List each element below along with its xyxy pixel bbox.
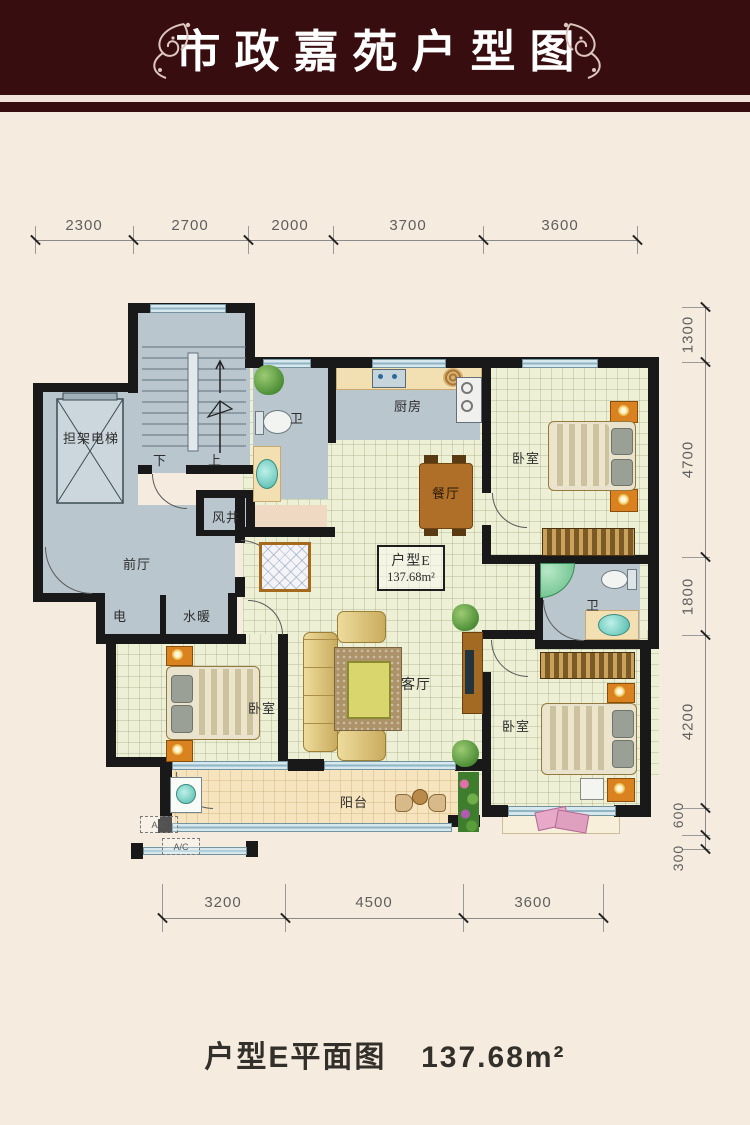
coffee-table xyxy=(347,661,391,719)
room-label-bath-top: 卫 xyxy=(288,408,306,427)
balcony-chair xyxy=(428,794,446,812)
caption-area: 137.68m² xyxy=(421,1041,565,1074)
room-label-electric: 电 xyxy=(108,606,132,625)
room-label-bedroom-se: 卧室 xyxy=(496,716,536,735)
dim-top-4: 3700 xyxy=(368,217,448,234)
ac-unit-2: A/C xyxy=(162,838,200,855)
balcony-rail-window xyxy=(172,823,452,832)
dim-ext xyxy=(463,884,464,932)
room-label-plumbing: 水暖 xyxy=(172,606,222,625)
wall-post xyxy=(131,843,143,859)
wall-segment xyxy=(535,640,651,649)
elevator-shaft-icon xyxy=(43,391,138,513)
bedroom-ne-window xyxy=(522,359,598,368)
stair-up-label: 上 xyxy=(205,450,225,469)
unit-area: 137.68m² xyxy=(379,570,443,585)
dim-right-4: 4200 xyxy=(680,687,697,757)
stair-down-label: 下 xyxy=(150,450,170,469)
plant-icon xyxy=(452,604,479,631)
balcony-table xyxy=(412,789,428,805)
dim-top-5: 3600 xyxy=(520,217,600,234)
page-title: 市政嘉苑户型图 xyxy=(161,15,588,80)
unit-info-box: 户型E 137.68m² xyxy=(377,545,445,591)
wall-exterior-right xyxy=(648,357,659,649)
lamp-icon xyxy=(614,686,625,697)
wall-segment xyxy=(33,383,43,600)
dim-right-2: 4700 xyxy=(680,425,697,495)
wall-segment xyxy=(33,593,103,602)
floral-ornament-right-icon xyxy=(558,18,612,80)
room-label-elevator: 担架电梯 xyxy=(50,428,132,447)
room-label-dining: 餐厅 xyxy=(428,483,464,502)
ac-label: A/C xyxy=(151,820,166,830)
wall-segment xyxy=(160,595,166,636)
dim-line-right xyxy=(705,307,706,849)
wall-segment xyxy=(228,593,237,636)
room-label-kitchen: 厨房 xyxy=(388,396,428,415)
wall-exterior-right-lower xyxy=(640,649,651,815)
dim-bottom-3: 3600 xyxy=(493,894,573,911)
pillow xyxy=(611,459,633,486)
floral-ornament-left-icon xyxy=(142,18,196,80)
stool xyxy=(580,778,604,800)
lamp-icon xyxy=(618,405,629,416)
bedroom-sw-balcony-window xyxy=(172,761,288,770)
lamp-icon xyxy=(614,783,625,794)
wall-segment xyxy=(235,577,245,597)
dim-top-3: 2000 xyxy=(250,217,330,234)
pillow xyxy=(612,710,634,738)
balcony-chair xyxy=(395,794,413,812)
lamp-icon xyxy=(172,649,183,660)
dim-bottom-1: 3200 xyxy=(183,894,263,911)
wall-segment xyxy=(482,630,540,639)
wall-segment xyxy=(482,363,491,493)
dim-top-1: 2300 xyxy=(44,217,124,234)
wall-post xyxy=(246,841,258,857)
title-banner: 市政嘉苑户型图 xyxy=(0,0,750,95)
pillow xyxy=(612,740,634,768)
pillow xyxy=(171,675,193,703)
staircase-icon xyxy=(138,313,250,465)
sofa-long xyxy=(303,632,338,752)
sofa-single xyxy=(337,729,386,761)
dim-right-3: 1800 xyxy=(680,562,697,632)
room-label-air-shaft: 风井 xyxy=(204,507,248,526)
ac-unit-1: A/C xyxy=(140,816,178,833)
kitchen-sink-icon xyxy=(372,369,406,388)
wall-segment xyxy=(245,527,335,537)
header-divider-dark xyxy=(0,102,750,112)
room-label-front-hall: 前厅 xyxy=(112,554,162,573)
pillow xyxy=(611,428,633,455)
sink-icon xyxy=(598,614,630,636)
wall-segment xyxy=(328,363,336,443)
faucet-dot xyxy=(392,374,397,379)
washer-drum xyxy=(176,784,196,804)
dim-line-bottom xyxy=(162,918,603,919)
room-label-living: 客厅 xyxy=(396,674,436,694)
unit-name: 户型E xyxy=(379,550,443,570)
wall-segment xyxy=(106,634,116,765)
wall-segment xyxy=(128,303,138,393)
burner-dot xyxy=(461,400,473,412)
wardrobe xyxy=(542,528,635,556)
bed-se xyxy=(541,703,637,775)
tv-icon xyxy=(465,650,474,694)
room-label-bath-right: 卫 xyxy=(584,595,602,614)
room-label-bedroom-ne: 卧室 xyxy=(506,448,546,467)
wall-segment xyxy=(288,759,324,771)
caption: 户型E平面图 137.68m² xyxy=(0,1032,750,1076)
dim-bottom-2: 4500 xyxy=(334,894,414,911)
mattress xyxy=(551,424,609,486)
entry-closet xyxy=(253,505,327,527)
burner-dot xyxy=(461,382,473,394)
lamp-icon xyxy=(618,494,629,505)
wall-segment xyxy=(96,634,246,644)
sofa-single xyxy=(337,611,386,643)
dim-ext xyxy=(162,884,163,932)
wall-segment xyxy=(482,805,508,817)
lamp-icon xyxy=(172,744,183,755)
dim-right-1: 1300 xyxy=(680,300,697,370)
wardrobe xyxy=(540,652,635,679)
entry-tile-decor xyxy=(259,542,311,592)
mattress xyxy=(544,706,610,770)
sink-icon xyxy=(256,459,278,489)
toilet-tank xyxy=(627,569,637,590)
ac-label: A/C xyxy=(173,842,188,852)
plant-icon xyxy=(254,365,284,395)
flower-box xyxy=(458,772,479,832)
header-divider-light xyxy=(0,95,750,102)
caption-title: 户型E平面图 xyxy=(204,1041,386,1074)
room-label-balcony: 阳台 xyxy=(332,792,376,811)
kitchen-window xyxy=(372,359,446,368)
faucet-dot xyxy=(378,374,383,379)
stair-window xyxy=(150,304,226,313)
room-label-bedroom-sw: 卧室 xyxy=(242,698,282,717)
dim-right-6: 300 xyxy=(670,830,686,886)
bed-ne xyxy=(548,421,636,491)
wall-segment xyxy=(614,805,651,817)
wall-segment xyxy=(482,672,491,805)
living-balcony-window xyxy=(324,761,456,770)
stair-hall-door-arc xyxy=(152,474,187,509)
toilet-icon xyxy=(601,570,628,589)
plant-icon xyxy=(452,740,479,767)
pillow xyxy=(171,705,193,733)
dim-top-2: 2700 xyxy=(150,217,230,234)
dim-ext xyxy=(285,884,286,932)
dim-ext xyxy=(603,884,604,932)
